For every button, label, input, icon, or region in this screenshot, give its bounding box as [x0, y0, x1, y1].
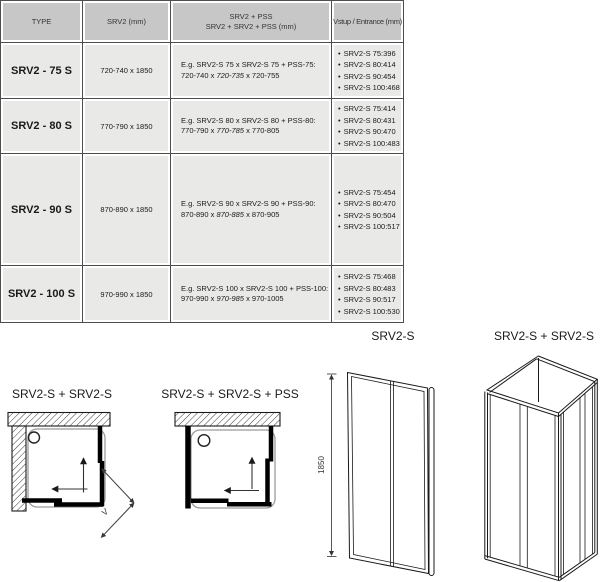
example-cell: E.g. SRV2-S 90 x SRV2-S 90 + PSS-90: 870… [171, 154, 331, 265]
shower-tray [28, 429, 105, 507]
example-line2: 720-740 x 720-735 x 720-755 [181, 71, 279, 82]
entrance-line: •SRV2-S 80:483 [338, 283, 398, 295]
entrance-line: •SRV2-S 100:468 [338, 82, 398, 94]
entrance-cell: •SRV2-S 75:468 •SRV2-S 80:483 •SRV2-S 90… [332, 266, 403, 322]
example-line2: 970-990 x 970-985 x 970-1005 [181, 294, 284, 305]
front-view-diagram-srv2s: SRV2-S 1850 [317, 330, 434, 576]
type-cell: SRV2 - 80 S [1, 99, 82, 153]
entrance-dimension-label: V [99, 505, 111, 517]
dimensions-cell: 770-790 x 1850 [83, 99, 170, 153]
technical-diagrams: SRV2-S + SRV2-S V [0, 330, 600, 582]
entrance-line: •SRV2-S 90:504 [338, 210, 398, 222]
example-cell: E.g. SRV2-S 80 x SRV2-S 80 + PSS-80: 770… [171, 99, 331, 153]
dimensions-cell: 970-990 x 1850 [83, 266, 170, 322]
entrance-line: •SRV2-S 80:414 [338, 59, 398, 71]
dimensions-cell: 720-740 x 1850 [83, 43, 170, 98]
entrance-line: •SRV2-S 100:483 [338, 138, 398, 150]
spec-table: TYPE SRV2 (mm) SRV2 + PSS SRV2 + SRV2 + … [0, 0, 404, 323]
col-header-srv2: SRV2 (mm) [83, 1, 170, 42]
dimensions-cell: 870-890 x 1850 [83, 154, 170, 265]
example-line1: E.g. SRV2-S 100 x SRV2-S 100 + PSS-100: [181, 284, 328, 295]
enclosure-box [485, 356, 598, 581]
entrance-line: •SRV2-S 80:470 [338, 198, 398, 210]
entrance-cell: •SRV2-S 75:396 •SRV2-S 80:414 •SRV2-S 90… [332, 43, 403, 98]
col-header-entrance: Vstup / Entrance (mm) [332, 1, 403, 42]
type-cell: SRV2 - 75 S [1, 43, 82, 98]
entrance-line: •SRV2-S 90:517 [338, 294, 398, 306]
entrance-line: •SRV2-S 75:468 [338, 271, 398, 283]
entrance-cell: •SRV2-S 75:414 •SRV2-S 80:431 •SRV2-S 90… [332, 99, 403, 153]
example-line1: E.g. SRV2-S 75 x SRV2-S 75 + PSS-75: [181, 60, 316, 71]
example-line2: 870-890 x 870-885 x 870-905 [181, 210, 279, 221]
wall-hatch-top [8, 413, 110, 427]
sliding-door-front [348, 373, 435, 576]
drain-icon [29, 432, 40, 443]
iso-view-diagram-srv2-srv2: SRV2-S + SRV2-S [485, 330, 598, 581]
diagram-title: SRV2-S [371, 330, 414, 343]
top-view-diagram-srv2-srv2-pss: SRV2-S + SRV2-S + PSS [161, 387, 299, 509]
example-cell: E.g. SRV2-S 100 x SRV2-S 100 + PSS-100: … [171, 266, 331, 322]
height-dimension-label: 1850 [317, 456, 326, 474]
example-line1: E.g. SRV2-S 90 x SRV2-S 90 + PSS-90: [181, 199, 316, 210]
entrance-line: •SRV2-S 80:431 [338, 115, 398, 127]
entrance-line: •SRV2-S 75:396 [338, 48, 398, 60]
diagram-title: SRV2-S + SRV2-S + PSS [161, 387, 299, 401]
drain-icon [198, 435, 210, 447]
example-line2: 770-790 x 770-785 x 770-805 [181, 126, 279, 137]
entrance-line: •SRV2-S 75:414 [338, 103, 398, 115]
type-cell: SRV2 - 100 S [1, 266, 82, 322]
col-header-combo: SRV2 + PSS SRV2 + SRV2 + PSS (mm) [171, 1, 331, 42]
wall-hatch-top [175, 413, 280, 427]
entrance-line: •SRV2-S 90:470 [338, 126, 398, 138]
example-line1: E.g. SRV2-S 80 x SRV2-S 80 + PSS-80: [181, 116, 316, 127]
entrance-line: •SRV2-S 100:530 [338, 306, 398, 318]
col-header-type: TYPE [1, 1, 82, 42]
col-header-combo-line1: SRV2 + PSS [229, 12, 272, 22]
top-view-diagram-srv2-srv2: SRV2-S + SRV2-S V [8, 387, 134, 538]
example-cell: E.g. SRV2-S 75 x SRV2-S 75 + PSS-75: 720… [171, 43, 331, 98]
page: TYPE SRV2 (mm) SRV2 + PSS SRV2 + SRV2 + … [0, 0, 600, 582]
entrance-line: •SRV2-S 100:517 [338, 221, 398, 233]
entrance-line: •SRV2-S 90:454 [338, 71, 398, 83]
type-cell: SRV2 - 90 S [1, 154, 82, 265]
door-profile-cap [429, 388, 434, 576]
entrance-line: •SRV2-S 75:454 [338, 187, 398, 199]
height-dimension: 1850 [317, 374, 337, 557]
diagram-title: SRV2-S + SRV2-S [494, 330, 594, 343]
col-header-combo-line2: SRV2 + SRV2 + PSS (mm) [206, 22, 297, 32]
diagram-title: SRV2-S + SRV2-S [12, 387, 112, 401]
entrance-cell: •SRV2-S 75:454 •SRV2-S 80:470 •SRV2-S 90… [332, 154, 403, 265]
